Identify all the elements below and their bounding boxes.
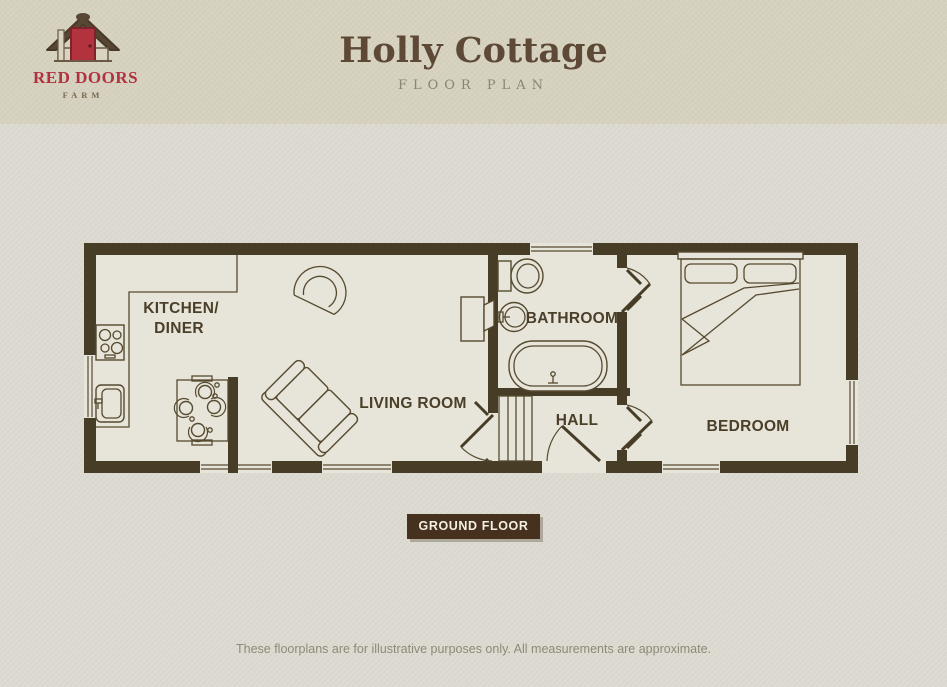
room-label-bedroom: BEDROOM [706,418,789,435]
bathtub-icon [509,341,607,391]
room-label-hall: HALL [556,412,599,429]
room-label-living: LIVING ROOM [359,395,467,412]
entrance-door-gap [542,461,606,473]
ground-floor-badge: GROUND FLOOR [407,514,541,539]
toilet-icon [498,259,543,293]
page-title: Holly Cottage [0,30,947,71]
room-label-kitchen-line1: KITCHEN/ [143,300,219,317]
floor-plan-drawing: KITCHEN/ DINER LIVING ROOM BATHROOM HALL… [84,243,858,473]
page-header: RED DOORS FARM Holly Cottage FLOOR PLAN [0,0,947,124]
page-subtitle: FLOOR PLAN [0,78,947,93]
kitchen-sink-icon [95,385,124,422]
disclaimer-text: These floorplans are for illustrative pu… [0,642,947,656]
room-label-bathroom: BATHROOM [526,310,619,327]
hob-icon [96,325,124,360]
room-label-kitchen-line2: DINER [154,320,204,337]
floor-plan: KITCHEN/ DINER LIVING ROOM BATHROOM HALL… [84,243,858,473]
